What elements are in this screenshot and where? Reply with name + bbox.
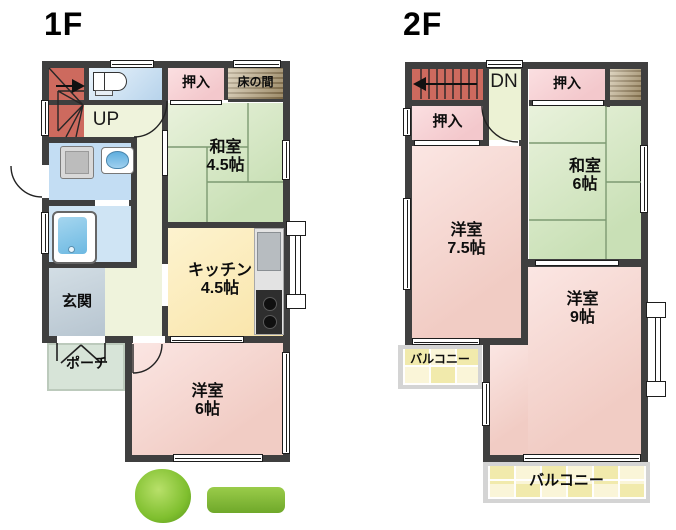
label-closet-1f: 押入 (168, 73, 224, 93)
washer-drum-icon (65, 151, 89, 174)
door-opening (42, 165, 49, 198)
stairs-2f (412, 69, 483, 100)
window (523, 454, 641, 462)
label-japanese-2f: 和室6帖 (529, 155, 641, 197)
sliding-door (414, 140, 480, 146)
bay-window-glass (655, 318, 661, 381)
window (403, 108, 411, 136)
door-opening (489, 140, 519, 146)
window (233, 60, 281, 68)
bush-icon (135, 469, 191, 523)
window (41, 100, 49, 136)
door-opening (57, 336, 105, 343)
label-entrance: 玄関 (49, 292, 105, 312)
label-closet-2f-left: 押入 (412, 110, 483, 134)
wall (228, 99, 283, 102)
label-tokonoma: 床の間 (228, 74, 283, 92)
window (173, 454, 263, 462)
bay-window (646, 302, 666, 318)
bay-window (286, 294, 306, 309)
label-kitchen: キッチン4.5帖 (170, 260, 270, 300)
window (412, 338, 480, 345)
floor2-title: 2F (403, 6, 442, 43)
label-western-9: 洋室9帖 (524, 287, 641, 331)
wall (49, 100, 162, 105)
wall (84, 61, 89, 105)
window (41, 212, 49, 254)
window (110, 60, 154, 68)
label-closet-2f-top: 押入 (529, 74, 605, 94)
sliding-door (535, 260, 619, 266)
bay-window (286, 221, 306, 236)
burner-icon (263, 315, 277, 329)
room-western-9-ext (490, 345, 528, 455)
wall (405, 100, 483, 106)
label-porch: ポーチ (49, 355, 125, 373)
room-storage-2f (610, 69, 641, 102)
wall (125, 336, 132, 462)
door-opening (133, 336, 165, 343)
door-opening (95, 200, 129, 206)
label-stairs-down: DN (487, 70, 521, 94)
window (482, 382, 490, 426)
sliding-door (532, 100, 604, 106)
window (282, 352, 290, 454)
door-arc (11, 166, 42, 197)
wall (42, 137, 137, 143)
floor-plan: 1F 2F (0, 0, 676, 530)
drain-icon (68, 246, 75, 253)
door-opening (162, 264, 168, 306)
bay-window-glass (295, 236, 301, 294)
label-balcony-left: バルコニー (398, 352, 482, 368)
label-balcony-rear: バルコニー (483, 472, 650, 490)
floor1-title: 1F (44, 6, 83, 43)
sink-bowl-icon (106, 151, 129, 169)
window (486, 60, 523, 68)
hedge-icon (207, 487, 285, 513)
label-japanese-1f: 和室4.5帖 (168, 136, 283, 178)
toilet-bowl-icon (104, 72, 127, 91)
window (282, 140, 290, 180)
label-western-75: 洋室7.5帖 (412, 218, 521, 262)
label-stairs-up: UP (88, 108, 124, 132)
window (403, 198, 411, 290)
window (170, 336, 244, 343)
label-western-1f: 洋室6帖 (132, 380, 283, 422)
bay-window (646, 381, 666, 397)
sliding-door (170, 100, 222, 105)
window (640, 145, 648, 213)
toilet-base-icon (95, 90, 113, 96)
